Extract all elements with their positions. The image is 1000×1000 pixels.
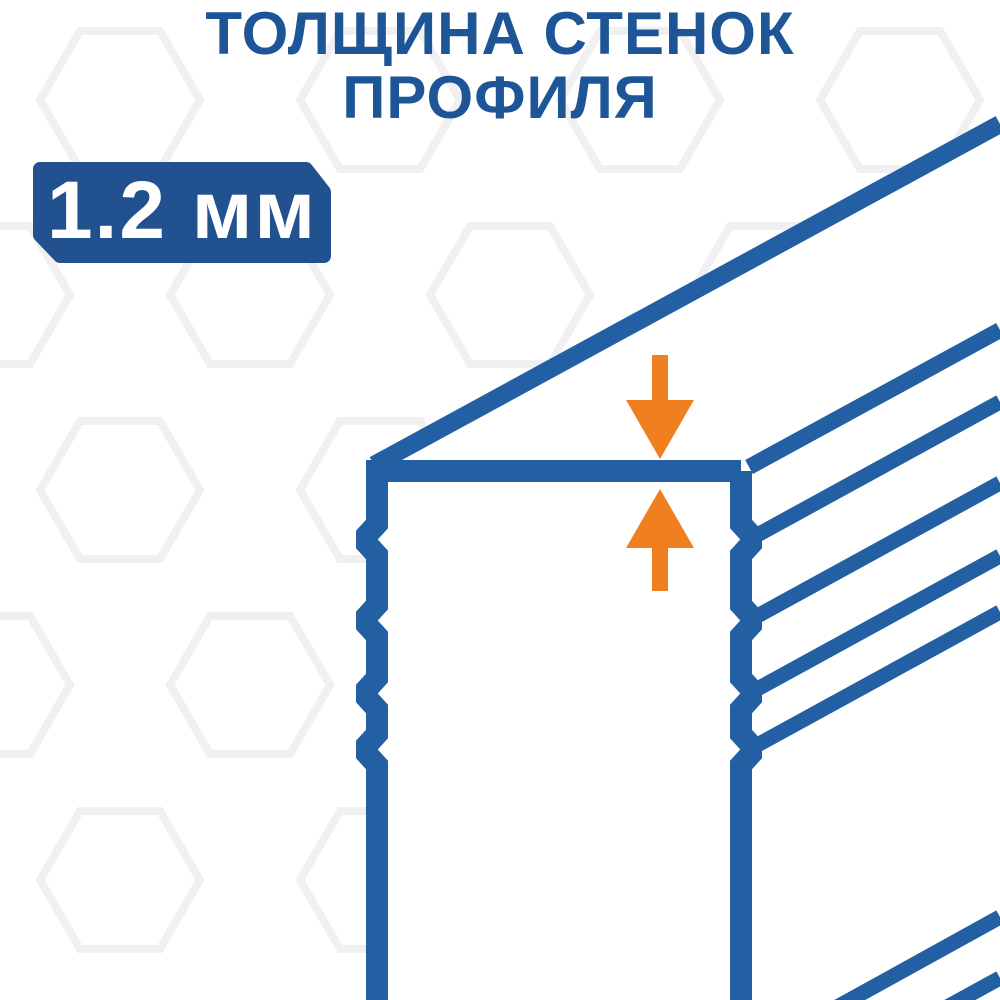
right-front-edge	[741, 471, 751, 1000]
left-wall-edge	[367, 460, 377, 1000]
badge-label: 1.2 мм	[33, 162, 331, 263]
thickness-badge: 1.2 мм	[33, 162, 331, 263]
page-title: ТОЛЩИНА СТЕНОК ПРОФИЛЯ	[0, 2, 1000, 130]
page-title-line2: ПРОФИЛЯ	[0, 66, 1000, 130]
page-title-line1: ТОЛЩИНА СТЕНОК	[0, 2, 1000, 66]
infographic-canvas: ТОЛЩИНА СТЕНОК ПРОФИЛЯ 1.2 мм	[0, 0, 1000, 1000]
profile-diagram	[0, 0, 1000, 1000]
